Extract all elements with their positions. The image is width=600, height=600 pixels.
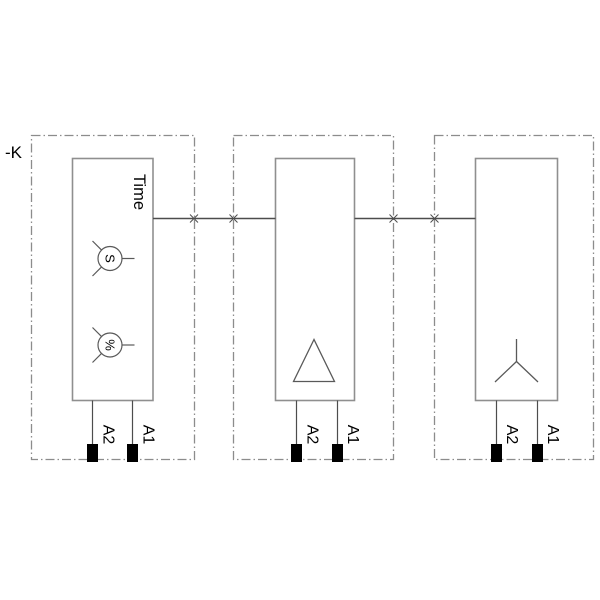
delta-triangle-icon xyxy=(294,340,335,382)
terminal-label-a1: A1 xyxy=(544,425,561,445)
enclosure-dashed-box-2 xyxy=(234,136,394,460)
terminal-block xyxy=(291,444,302,462)
schematic-canvas: -K Time S % A2 A1 A2 A1 A2 A1 xyxy=(0,0,600,600)
device-body-star xyxy=(476,159,558,401)
dial-stem-lower xyxy=(93,353,102,362)
dial-label-seconds: S xyxy=(103,254,118,263)
reference-designation-label: -K xyxy=(5,143,23,162)
dial-stem-upper xyxy=(93,241,102,250)
terminal-label-a1: A1 xyxy=(140,425,157,445)
terminal-label-a2: A2 xyxy=(503,425,520,445)
dial-label-percent: % xyxy=(103,339,118,351)
enclosure-boxes xyxy=(32,136,594,460)
terminal-block xyxy=(127,444,138,462)
contact-symbols xyxy=(294,339,539,382)
relay-function-diagram: -K Time S % A2 A1 A2 A1 A2 A1 xyxy=(0,0,600,600)
terminal-label-a2: A2 xyxy=(304,425,321,445)
labels: -K Time S % A2 A1 A2 A1 A2 A1 xyxy=(5,143,561,444)
terminal-block xyxy=(532,444,543,462)
terminal-block xyxy=(491,444,502,462)
terminal-block xyxy=(332,444,343,462)
dial-stem-lower xyxy=(93,267,102,276)
timer-title-label: Time xyxy=(130,174,148,210)
terminal-label-a2: A2 xyxy=(100,425,117,445)
dial-stem-upper xyxy=(93,328,102,337)
star-wye-icon xyxy=(495,339,538,382)
interconnection-lines xyxy=(153,215,476,223)
enclosure-dashed-box-1 xyxy=(32,136,195,460)
terminal-block xyxy=(87,444,98,462)
device-body-delta xyxy=(276,159,355,401)
terminal-label-a1: A1 xyxy=(344,425,361,445)
enclosure-dashed-box-3 xyxy=(435,136,594,460)
